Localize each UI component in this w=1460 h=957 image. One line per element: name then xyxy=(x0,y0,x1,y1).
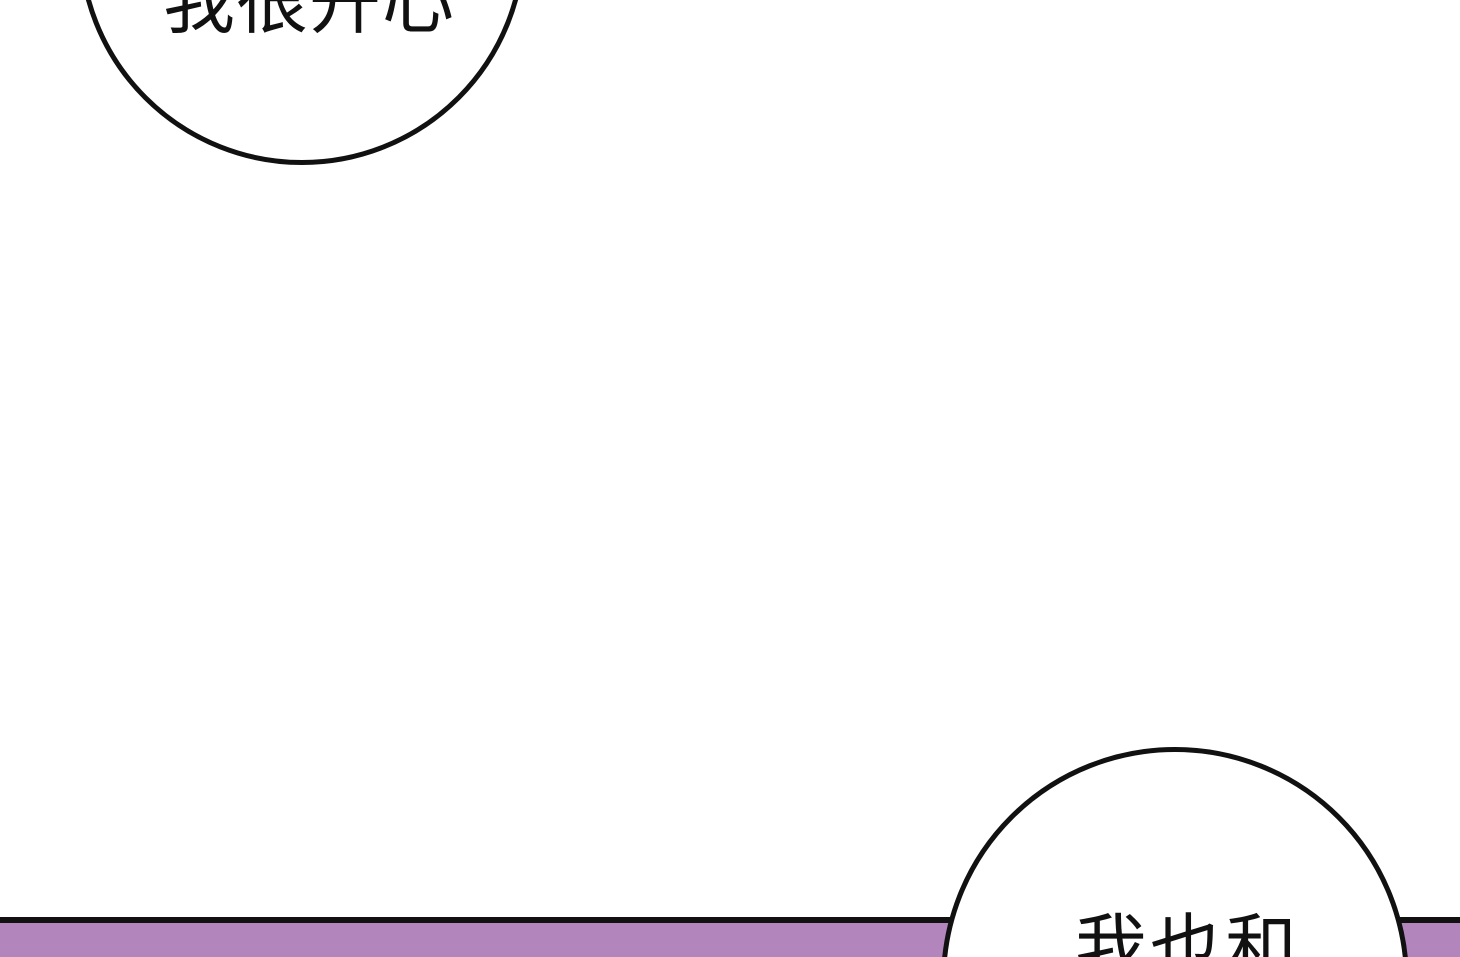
comic-panel: 我很开心 我也和 xyxy=(0,0,1460,957)
speech-bubble-bottom-text: 我也和 xyxy=(1075,912,1300,957)
speech-bubble-top-text: 我很开心 xyxy=(163,0,455,38)
